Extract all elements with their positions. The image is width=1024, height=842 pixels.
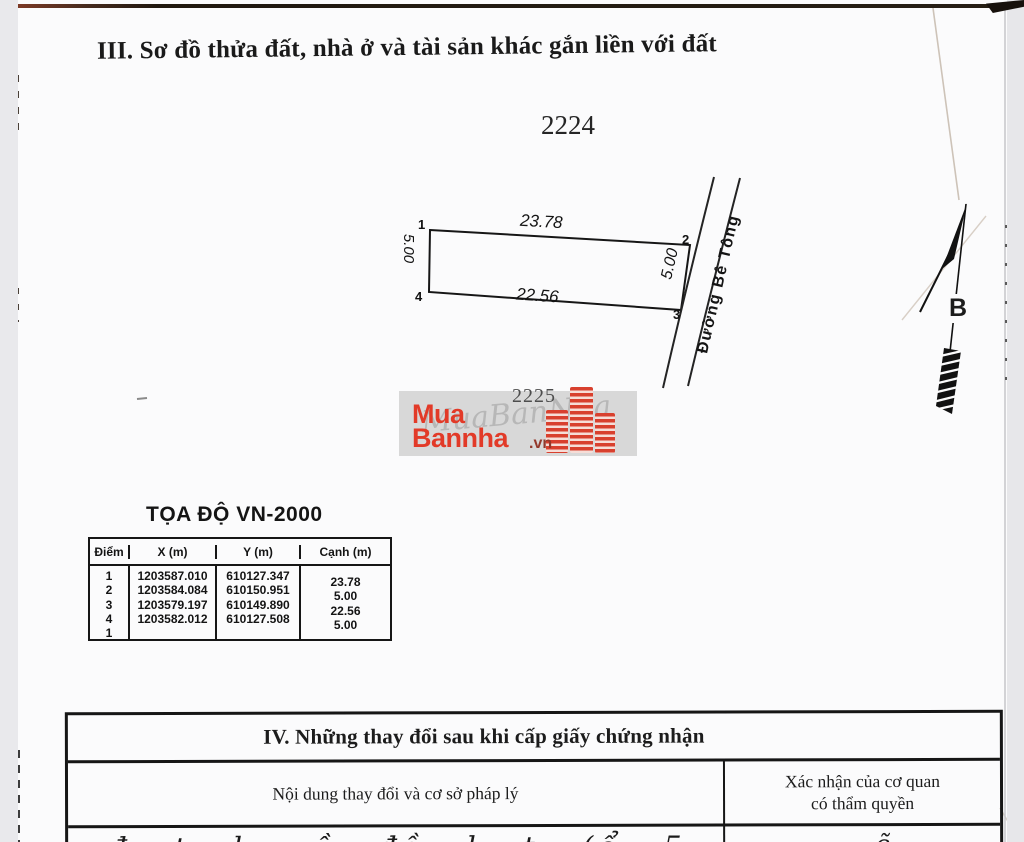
clipped-handwriting: đ t l nề đồ l t (ổ 5 l bbox=[68, 827, 723, 842]
watermark-word-bannha: Bannha bbox=[412, 426, 508, 450]
scan-speck bbox=[137, 398, 147, 399]
road-line-left bbox=[663, 177, 714, 388]
edge-length-column: 23.78 5.00 22.56 5.00 bbox=[299, 566, 390, 639]
entry-left-cell: đ t l nề đồ l t (ổ 5 l bbox=[68, 826, 725, 842]
corner-point-1: 1 bbox=[418, 217, 425, 232]
page-top-border-line bbox=[18, 4, 1008, 8]
section4-entry-row: đ t l nề đồ l t (ổ 5 l ẽ bbox=[68, 826, 1000, 842]
edge-length-top: 23.78 bbox=[519, 211, 563, 233]
authority-confirmation-header: Xác nhận của cơ quan có thẩm quyền bbox=[725, 761, 1000, 824]
section4-column-headers: Nội dung thay đổi và cơ sở pháp lý Xác n… bbox=[68, 761, 1000, 828]
scan-crease bbox=[933, 8, 959, 200]
adjacent-parcel-number-bottom: 2225 bbox=[512, 385, 556, 408]
coordinate-table-body: 1 2 3 4 1 1203587.010 1203584.084 120357… bbox=[90, 566, 390, 639]
north-letter: B bbox=[947, 294, 969, 323]
y-column: 610127.347 610150.951 610149.890 610127.… bbox=[215, 566, 299, 639]
corner-point-3: 3 bbox=[673, 307, 680, 322]
page-right-margin bbox=[1007, 0, 1024, 842]
section4-table: IV. Những thay đổi sau khi cấp giấy chứn… bbox=[65, 710, 1003, 842]
coordinate-table-header: Điểm X (m) Y (m) Cạnh (m) bbox=[90, 539, 390, 566]
edge-length-left: 5.00 bbox=[400, 234, 417, 263]
edge-length-bottom: 22.56 bbox=[515, 285, 559, 308]
col-header-edge: Cạnh (m) bbox=[299, 545, 390, 559]
change-content-header: Nội dung thay đổi và cơ sở pháp lý bbox=[68, 762, 725, 826]
parcel-outline bbox=[429, 230, 690, 310]
scanned-certificate-page: III. Sơ đồ thửa đất, nhà ở và tài sản kh… bbox=[0, 0, 1024, 842]
corner-point-4: 4 bbox=[415, 289, 422, 304]
col-header-point: Điểm bbox=[90, 545, 128, 559]
adjacent-parcel-number-top: 2224 bbox=[541, 110, 595, 141]
clipped-handwriting: ẽ bbox=[725, 826, 1000, 842]
page-left-margin bbox=[0, 0, 18, 842]
coordinate-table: Điểm X (m) Y (m) Cạnh (m) 1 2 3 4 1 1203… bbox=[88, 537, 392, 641]
scan-crease bbox=[902, 216, 986, 320]
section4-header-row: IV. Những thay đổi sau khi cấp giấy chứn… bbox=[68, 713, 1000, 763]
corner-point-2: 2 bbox=[682, 232, 689, 247]
coord-table-title: TỌA ĐỘ VN-2000 bbox=[146, 503, 323, 527]
point-column: 1 2 3 4 1 bbox=[90, 566, 128, 639]
buildings-icon bbox=[546, 387, 616, 455]
col-header-y: Y (m) bbox=[215, 545, 299, 559]
x-column: 1203587.010 1203584.084 1203579.197 1203… bbox=[128, 566, 215, 639]
col-header-x: X (m) bbox=[128, 545, 215, 559]
entry-right-cell: ẽ bbox=[725, 826, 1000, 842]
watermark-domain-suffix: .vn bbox=[529, 435, 552, 453]
section4-title: IV. Những thay đổi sau khi cấp giấy chứn… bbox=[263, 724, 704, 750]
